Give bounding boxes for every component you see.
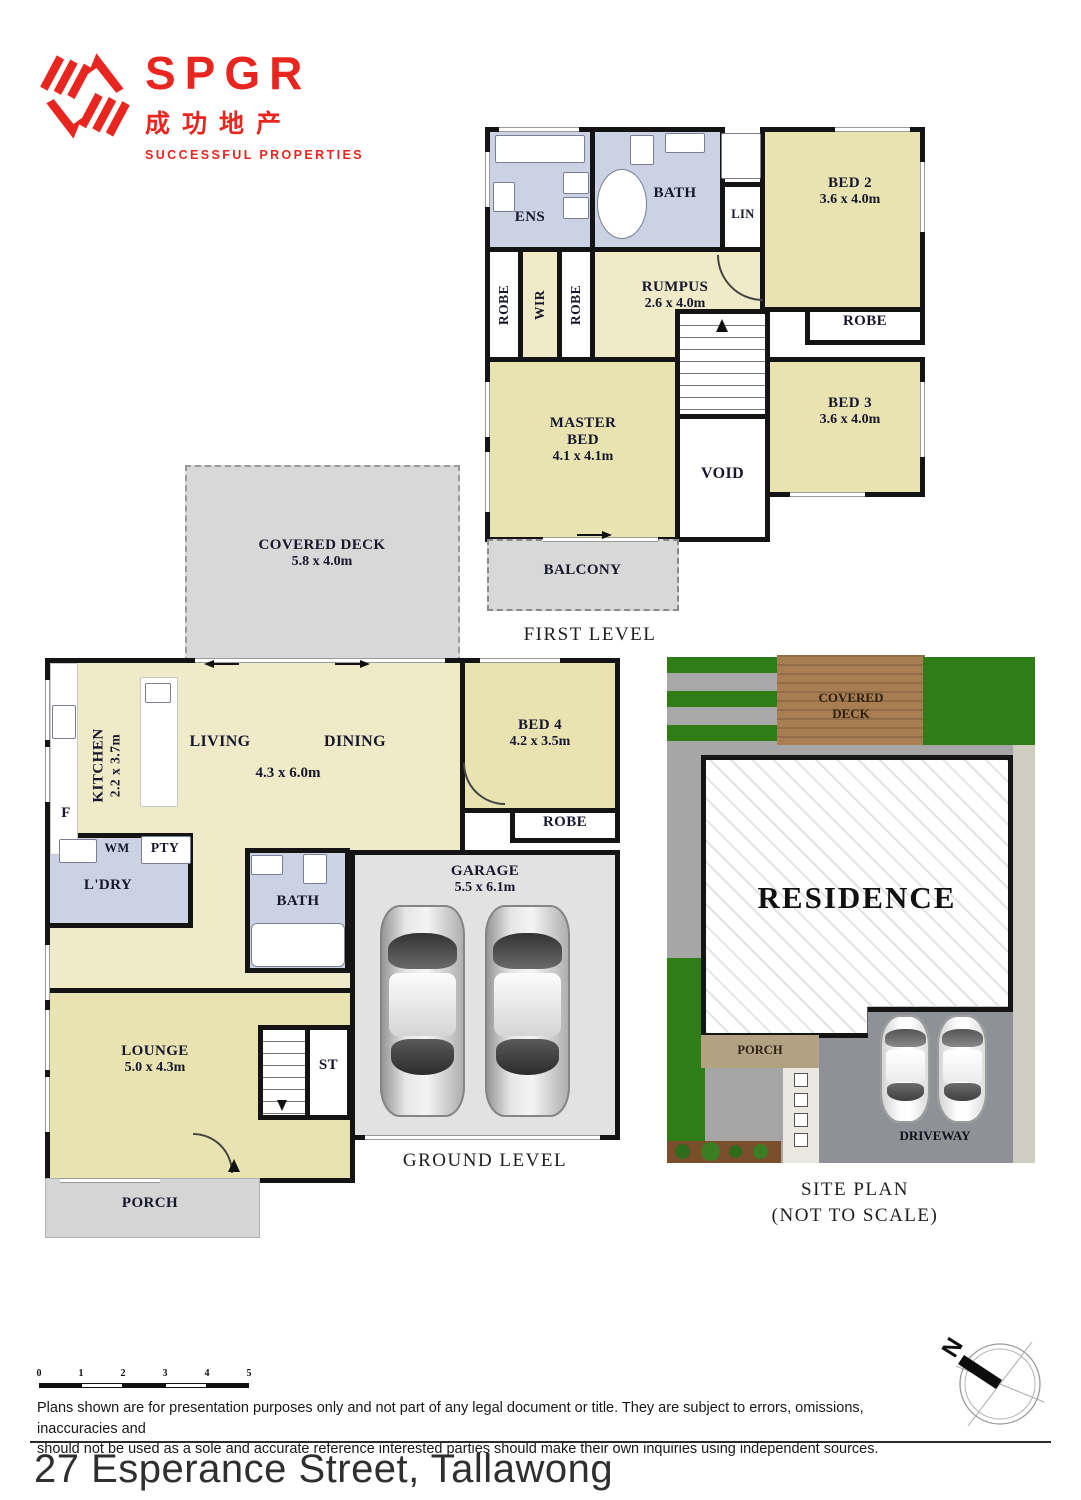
car-rear-window bbox=[887, 1083, 924, 1101]
logo-tagline: SUCCESSFUL PROPERTIES bbox=[145, 148, 364, 162]
covered-deck-label: COVERED DECK5.8 x 4.0m bbox=[257, 537, 387, 569]
wm-label: WM bbox=[97, 841, 137, 855]
scale-segment bbox=[81, 1383, 123, 1388]
window bbox=[485, 152, 490, 207]
first-level-caption: FIRST LEVEL bbox=[490, 624, 690, 646]
balcony-door-arrow bbox=[577, 534, 603, 536]
scale-segment bbox=[207, 1383, 249, 1388]
ground-level-plan: COVERED DECK5.8 x 4.0m bbox=[45, 465, 625, 1255]
car-roof bbox=[886, 1050, 925, 1082]
scale-bar: 0 1 2 3 4 5 bbox=[37, 1368, 257, 1392]
car-icon bbox=[380, 905, 465, 1117]
scale-tick: 4 bbox=[205, 1368, 210, 1379]
site-porch-label: PORCH bbox=[701, 1043, 819, 1058]
car-icon bbox=[937, 1015, 987, 1123]
rumpus-label: RUMPUS2.6 x 4.0m bbox=[595, 279, 755, 311]
ldry-label: L'DRY bbox=[63, 877, 153, 894]
bed4-robe-label: ROBE bbox=[515, 814, 615, 831]
room-bed2 bbox=[760, 127, 925, 312]
bath-label: BATH bbox=[630, 185, 720, 202]
side-path bbox=[1013, 745, 1035, 1163]
car-roof bbox=[494, 973, 560, 1037]
scale-segment bbox=[39, 1383, 81, 1388]
porch-ground-label: PORCH bbox=[85, 1195, 215, 1212]
car-rear-window bbox=[944, 1083, 981, 1101]
site-plan-caption: SITE PLAN(NOT TO SCALE) bbox=[720, 1177, 990, 1228]
compass-icon: N bbox=[938, 1322, 1050, 1434]
balcony-door bbox=[543, 537, 658, 542]
disclaimer-line1: Plans shown are for presentation purpose… bbox=[37, 1400, 864, 1437]
spgr-logo-icon bbox=[36, 46, 136, 148]
bed4-label: BED 44.2 x 3.5m bbox=[468, 717, 612, 749]
window bbox=[485, 382, 490, 437]
scale-segment bbox=[165, 1383, 207, 1388]
kitchen-label: KITCHEN2.2 x 3.7m bbox=[75, 690, 139, 840]
vanity-icon bbox=[563, 172, 589, 194]
fridge-label: F bbox=[55, 805, 77, 822]
logo-text: SPGR 成功地产 SUCCESSFUL PROPERTIES bbox=[145, 50, 364, 162]
window bbox=[45, 1077, 50, 1132]
ground-level-caption: GROUND LEVEL bbox=[375, 1150, 595, 1172]
car-roof bbox=[389, 973, 455, 1037]
car-icon bbox=[485, 905, 570, 1117]
first-level-plan: ENS BATH LIN ROBE WIR ROBE RUMPUS2.6 x 4… bbox=[485, 127, 925, 652]
entry-arrow bbox=[228, 1159, 240, 1172]
vanity-icon bbox=[665, 133, 705, 153]
sliding-door-arrow bbox=[335, 663, 361, 665]
driveway-label: DRIVEWAY bbox=[855, 1128, 1015, 1144]
car-rear-window bbox=[496, 1039, 559, 1075]
stepping-stone bbox=[794, 1073, 808, 1087]
property-address: 27 Esperance Street, Tallawong bbox=[34, 1447, 613, 1492]
site-covered-deck-label: COVERED DECK bbox=[801, 690, 901, 721]
shrub-icon bbox=[701, 1142, 720, 1161]
lin-label: LIN bbox=[718, 207, 768, 221]
void-label: VOID bbox=[680, 465, 765, 483]
bathtub-icon bbox=[251, 923, 345, 967]
logo-brand: SPGR bbox=[145, 50, 364, 96]
window bbox=[485, 452, 490, 512]
bed3-label: BED 33.6 x 4.0m bbox=[775, 395, 925, 427]
residence-label: RESIDENCE bbox=[701, 880, 1013, 916]
stepping-stone bbox=[794, 1093, 808, 1107]
garage-door bbox=[365, 1135, 600, 1140]
garden-bed bbox=[667, 1141, 781, 1163]
car-windshield bbox=[493, 933, 563, 969]
robe-right-label: ROBE bbox=[557, 247, 595, 362]
car-roof bbox=[943, 1050, 982, 1082]
balcony-label: BALCONY bbox=[505, 562, 660, 579]
stove-icon bbox=[52, 705, 76, 739]
bathtub-icon bbox=[597, 169, 647, 239]
shower-icon bbox=[721, 133, 761, 179]
st-label: ST bbox=[307, 1057, 350, 1074]
window bbox=[45, 680, 50, 740]
wir-label: WIR bbox=[518, 247, 562, 362]
car-icon bbox=[880, 1015, 930, 1123]
toilet-icon bbox=[493, 182, 515, 212]
car-windshield bbox=[388, 933, 458, 969]
scale-tick: 3 bbox=[163, 1368, 168, 1379]
shrub-icon bbox=[675, 1144, 690, 1159]
toilet-icon bbox=[303, 854, 327, 884]
dining-label: DINING bbox=[300, 733, 410, 751]
vanity-icon bbox=[251, 855, 283, 875]
window bbox=[45, 945, 50, 1000]
scale-tick: 1 bbox=[79, 1368, 84, 1379]
ens-label: ENS bbox=[495, 209, 565, 226]
sink-icon bbox=[145, 683, 171, 703]
lawn bbox=[923, 657, 1035, 747]
scale-tick: 0 bbox=[37, 1368, 42, 1379]
bed2-label: BED 23.6 x 4.0m bbox=[775, 175, 925, 207]
window bbox=[60, 1178, 160, 1183]
living-label: LIVING bbox=[165, 733, 275, 751]
washing-machine-icon bbox=[59, 839, 97, 863]
lawn-striped bbox=[667, 657, 781, 747]
stepping-stone bbox=[794, 1133, 808, 1147]
window bbox=[499, 127, 579, 132]
shrub-icon bbox=[753, 1144, 768, 1159]
window bbox=[790, 492, 865, 497]
car-rear-window bbox=[391, 1039, 454, 1075]
pty-label: PTY bbox=[141, 840, 189, 855]
living-dining-dims: 4.3 x 6.0m bbox=[208, 765, 368, 782]
window bbox=[480, 658, 560, 663]
floorplan-page: SPGR 成功地产 SUCCESSFUL PROPERTIES bbox=[0, 0, 1081, 1500]
stepping-stone bbox=[794, 1113, 808, 1127]
stairs-up-arrow bbox=[716, 319, 728, 332]
divider-line bbox=[30, 1441, 1051, 1443]
sliding-door-arrow bbox=[213, 663, 239, 665]
window bbox=[45, 747, 50, 802]
scale-tick: 5 bbox=[247, 1368, 252, 1379]
garage-label: GARAGE5.5 x 6.1m bbox=[375, 863, 595, 895]
scale-tick: 2 bbox=[121, 1368, 126, 1379]
window bbox=[835, 127, 910, 132]
bathtub-icon bbox=[495, 135, 585, 163]
bath-ground-label: BATH bbox=[253, 893, 343, 910]
shrub-icon bbox=[729, 1145, 742, 1158]
kitchen-counter bbox=[50, 663, 78, 855]
window bbox=[45, 1010, 50, 1070]
vanity-icon bbox=[563, 197, 589, 219]
stepping-stone-path bbox=[783, 1068, 819, 1163]
logo-chinese: 成功地产 bbox=[145, 104, 364, 140]
stairs-down-arrow bbox=[277, 1100, 287, 1111]
bed2-robe-label: ROBE bbox=[810, 313, 920, 330]
site-plan: RESIDENCE COVERED DECK PORCH DRIVEWAY SI… bbox=[665, 655, 1037, 1220]
car-windshield bbox=[942, 1029, 983, 1047]
scale-segment bbox=[123, 1383, 165, 1388]
lawn-left bbox=[667, 958, 705, 1163]
car-windshield bbox=[885, 1029, 926, 1047]
toilet-icon bbox=[630, 135, 654, 165]
master-bed-label: MASTER BED4.1 x 4.1m bbox=[542, 415, 624, 464]
lounge-label: LOUNGE5.0 x 4.3m bbox=[75, 1043, 235, 1075]
